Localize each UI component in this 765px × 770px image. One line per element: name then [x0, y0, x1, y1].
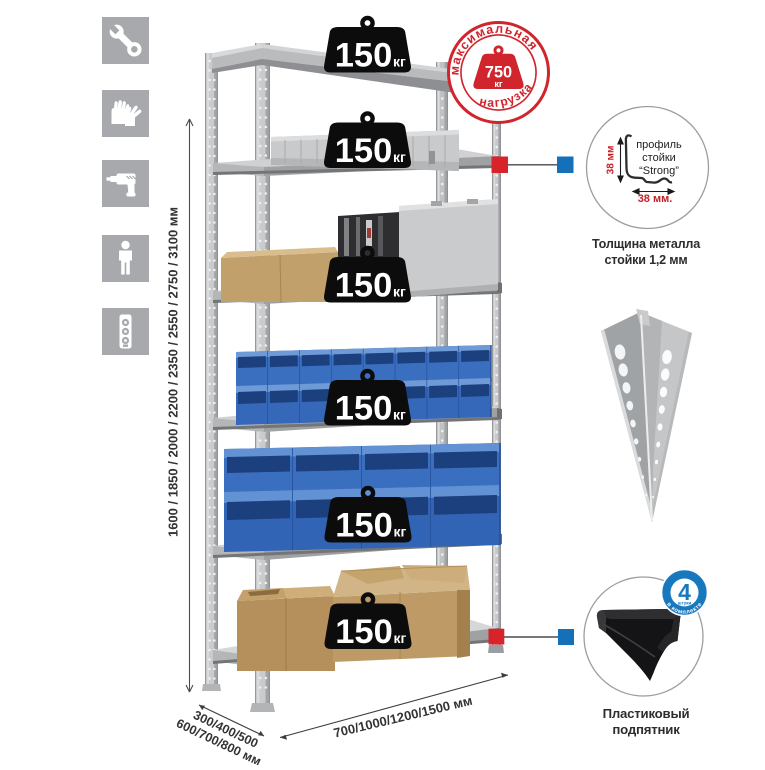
svg-text:150: 150: [335, 613, 393, 651]
svg-text:профиль: профиль: [636, 139, 682, 151]
svg-text:кг: кг: [393, 149, 406, 165]
svg-text:кг: кг: [394, 630, 407, 646]
svg-text:Пластиковый: Пластиковый: [603, 706, 690, 721]
svg-text:150: 150: [335, 132, 393, 170]
svg-text:штуки: штуки: [678, 601, 692, 606]
svg-text:38 мм.: 38 мм.: [638, 193, 673, 205]
svg-text:кг: кг: [393, 407, 406, 423]
svg-text:Толщина металла: Толщина металла: [592, 237, 701, 251]
svg-text:кг: кг: [393, 284, 406, 300]
svg-text:150: 150: [335, 37, 393, 75]
svg-text:подпятник: подпятник: [612, 722, 680, 737]
svg-text:150: 150: [335, 507, 393, 545]
svg-text:стойки: стойки: [642, 152, 676, 164]
svg-text:1600 / 1850 / 2000 / 2200 / 23: 1600 / 1850 / 2000 / 2200 / 2350 / 2550 …: [166, 207, 181, 537]
svg-text:150: 150: [335, 390, 393, 428]
svg-text:кг: кг: [394, 524, 407, 540]
svg-text:кг: кг: [393, 54, 406, 70]
svg-text:стойки 1,2 мм: стойки 1,2 мм: [604, 253, 687, 267]
svg-text:38 мм: 38 мм: [606, 146, 617, 175]
svg-text:“Strong”: “Strong”: [639, 165, 679, 177]
svg-text:150: 150: [335, 267, 393, 305]
svg-text:кг: кг: [494, 79, 503, 89]
